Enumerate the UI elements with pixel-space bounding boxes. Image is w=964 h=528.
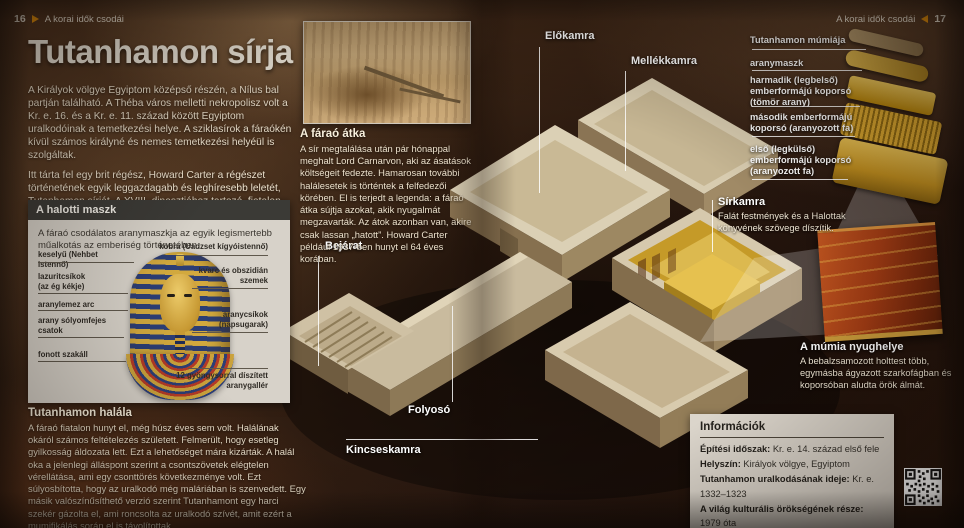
arrow-left-icon <box>921 15 928 23</box>
mask-eye-right <box>184 294 192 297</box>
info-row-heritage: A világ kulturális örökségének része: 19… <box>700 502 884 528</box>
burial-chamber-title: Sírkamra <box>718 196 868 208</box>
photo-walkway <box>364 66 444 98</box>
leader-line-gold-mask <box>752 70 862 71</box>
resting-place-title: A múmia nyughelye <box>800 341 958 353</box>
book-spread: 16 A korai idők csodái A korai idők csod… <box>0 0 964 528</box>
leader-line <box>38 262 134 263</box>
page-number-right: 17 <box>934 13 946 25</box>
leader-line-antechamber <box>539 47 540 193</box>
mask-label-eyes: kvarc és obszidián szemek <box>188 266 268 285</box>
header-right: A korai idők csodái 17 <box>836 13 946 25</box>
leader-line-mummy <box>752 49 866 50</box>
leader-line <box>38 337 124 338</box>
curse-text: A sír megtalálása után pár hónappal megh… <box>300 143 474 265</box>
mask-label-cobra: kobra (Uadzset kígyóistennő) <box>158 242 268 252</box>
death-text: A fáraó fiatalon hunyt el, még húsz éves… <box>28 422 306 528</box>
leader-line <box>38 293 128 294</box>
death-mask-box-title: A halotti maszk <box>28 200 290 220</box>
info-box: Információk Építési időszak: Kr. e. 14. … <box>690 414 894 528</box>
resting-place-note: A múmia nyughelye A bebalzsamozott holtt… <box>800 341 958 391</box>
qr-code <box>904 468 942 506</box>
section-title-right: A korai idők csodái <box>836 14 915 25</box>
mask-label-vulture: keselyű (Nehbet istennő) <box>38 250 122 269</box>
page-title: Tutanhamon sírja <box>28 33 293 71</box>
label-mummy: Tutanhamon múmiája <box>750 35 854 46</box>
label-treasury: Kincseskamra <box>346 444 421 456</box>
mask-beard <box>175 332 185 356</box>
mask-label-gold-face: aranylemez arc <box>38 300 110 310</box>
label-second-coffin: második emberformájú koporsó (aranyozott… <box>750 112 856 134</box>
resting-place-text: A bebalzsamozott holttest több, egymásba… <box>800 355 958 391</box>
info-box-title: Információk <box>700 421 884 438</box>
info-row-location: Helyszín: Királyok völgye, Egyiptom <box>700 457 884 472</box>
leader-line <box>192 288 268 289</box>
gilded-shrine-image <box>817 222 943 342</box>
arrow-right-icon <box>32 15 39 23</box>
leader-line-third-coffin <box>752 106 860 107</box>
section-title-left: A korai idők csodái <box>45 14 124 25</box>
curse-title: A fáraó átka <box>300 128 474 140</box>
label-first-coffin: első (legkülső) emberformájú koporsó (ar… <box>750 144 856 177</box>
death-title: Tutanhamon halála <box>28 407 306 419</box>
leader-line-first-coffin <box>752 179 848 180</box>
label-annex: Mellékkamra <box>631 55 697 67</box>
death-section: Tutanhamon halála A fáraó fiatalon hunyt… <box>28 407 306 528</box>
leader-line-entrance <box>318 256 319 366</box>
leader-line-annex <box>625 71 626 171</box>
mask-eye-left <box>167 294 175 297</box>
burial-chamber-text: Falát festmények és a Halottak könyvének… <box>718 210 868 234</box>
label-gold-mask: aranymaszk <box>750 58 854 69</box>
excavation-photo <box>303 21 471 124</box>
intro-paragraph-1: A Királyok völgye Egyiptom középső részé… <box>28 84 298 162</box>
leader-line <box>192 332 268 333</box>
info-row-reign: Tutanhamon uralkodásának ideje: Kr. e. 1… <box>700 472 884 502</box>
page-number-left: 16 <box>14 13 26 25</box>
leader-line <box>176 255 268 256</box>
leader-line <box>38 361 126 362</box>
info-row-period: Építési időszak: Kr. e. 14. század első … <box>700 442 884 457</box>
curse-section: A fáraó átka A sír megtalálása után pár … <box>300 128 474 265</box>
leader-line <box>188 368 268 369</box>
leader-line-second-coffin <box>752 136 855 137</box>
leader-line <box>38 310 128 311</box>
label-antechamber: Előkamra <box>545 30 595 42</box>
header-left: 16 A korai idők csodái <box>14 13 124 25</box>
leader-line-treasury <box>346 439 538 440</box>
label-corridor: Folyosó <box>408 404 450 416</box>
label-third-coffin: harmadik (legbelső) emberformájú koporsó… <box>750 75 856 108</box>
mask-label-falcon-clasps: arany sólyomfejes csatok <box>38 316 108 335</box>
mask-label-gold-stripes: aranycsíkok (napsugarak) <box>188 310 268 329</box>
mask-label-collar: 12 gyöngysorral díszített aranygallér <box>173 371 268 390</box>
leader-line-burial <box>712 200 713 252</box>
leader-line-corridor <box>452 306 453 402</box>
burial-chamber-note: Sírkamra Falát festmények és a Halottak … <box>718 196 868 234</box>
mask-label-beard: fonott szakáll <box>38 350 110 360</box>
mask-label-lapis: lazuritcsíkok (az ég kékje) <box>38 272 98 291</box>
